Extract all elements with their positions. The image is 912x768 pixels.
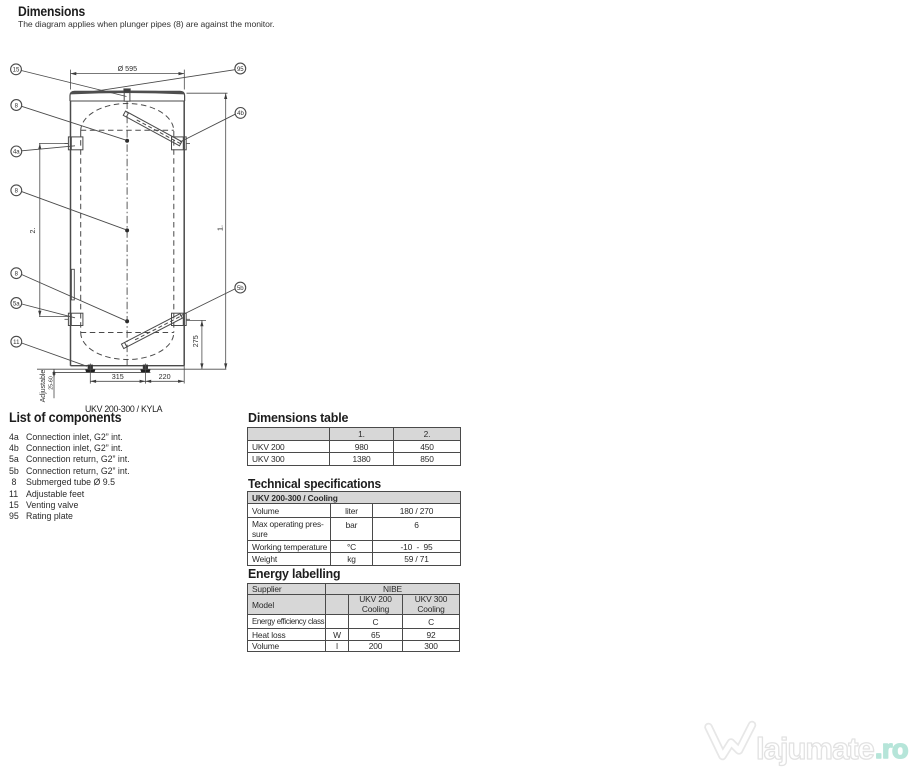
- svg-text:275: 275: [191, 335, 200, 347]
- svg-text:Ø 595: Ø 595: [118, 64, 138, 73]
- svg-text:15: 15: [13, 68, 20, 74]
- svg-text:220: 220: [159, 372, 171, 381]
- svg-text:95: 95: [237, 67, 244, 73]
- svg-text:4a: 4a: [13, 150, 20, 156]
- svg-text:2.: 2.: [28, 228, 37, 234]
- svg-text:5a: 5a: [13, 301, 20, 307]
- svg-text:5b: 5b: [237, 286, 244, 292]
- svg-text:315: 315: [112, 372, 124, 381]
- svg-text:11: 11: [13, 340, 20, 346]
- svg-text:Adjustable: Adjustable: [40, 370, 47, 403]
- svg-text:lajumate: lajumate: [756, 731, 875, 766]
- svg-text:25-60: 25-60: [48, 376, 54, 390]
- svg-text:1.: 1.: [216, 225, 225, 231]
- svg-text:.ro: .ro: [875, 734, 908, 764]
- svg-text:4b: 4b: [237, 111, 244, 117]
